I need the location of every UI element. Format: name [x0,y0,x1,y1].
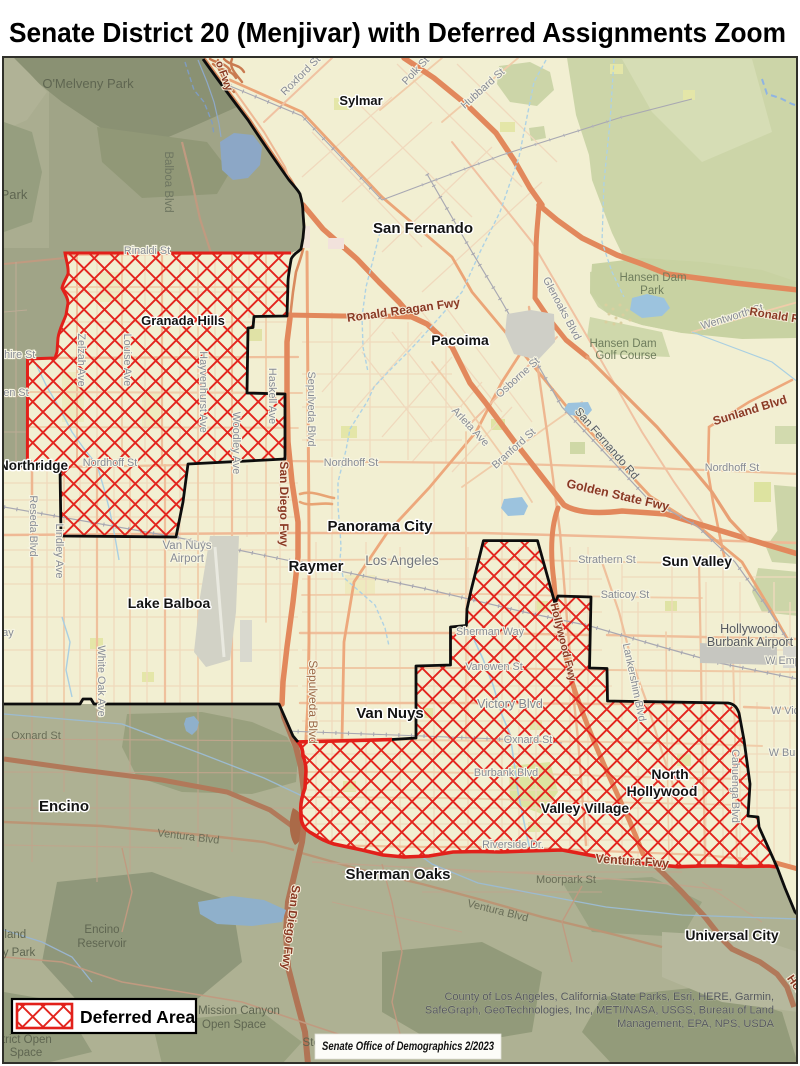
svg-text:Nordhoff St: Nordhoff St [705,462,759,474]
svg-text:Pacoima: Pacoima [431,332,489,348]
svg-text:San Diego Fwy: San Diego Fwy [277,461,291,547]
svg-text:Park: Park [640,285,664,297]
svg-text:Van Nuys: Van Nuys [162,540,211,552]
svg-text:Hayvenhurst Ave: Hayvenhurst Ave [197,351,209,432]
svg-text:Mission Canyon: Mission Canyon [198,1005,280,1017]
svg-text:Sepulveda Blvd: Sepulveda Blvd [306,660,320,743]
svg-text:Lake Balboa: Lake Balboa [128,595,211,611]
svg-text:strict Open: strict Open [4,1034,52,1046]
svg-text:Nordhoff St: Nordhoff St [324,457,378,469]
svg-text:Sepulveda Blvd: Sepulveda Blvd [305,371,317,446]
svg-text:Panorama City: Panorama City [327,518,433,535]
svg-text:Victory Blvd: Victory Blvd [477,697,543,711]
svg-text:Lindley Ave: Lindley Ave [53,523,65,578]
svg-text:Senate Office of Demographics: Senate Office of Demographics 2/2023 [322,1039,494,1053]
svg-text:Los Angeles: Los Angeles [365,553,439,568]
svg-text:W Emp: W Emp [765,655,796,667]
svg-text:Moorpark St: Moorpark St [536,874,596,886]
svg-text:Raymer: Raymer [288,558,343,575]
svg-text:Van Nuys: Van Nuys [356,705,424,722]
svg-text:Granada Hills: Granada Hills [141,313,225,328]
svg-text:Park: Park [4,187,28,202]
svg-text:Valley Village: Valley Village [541,800,630,816]
svg-text:O'Melveny Park: O'Melveny Park [42,76,134,91]
svg-text:Reservoir: Reservoir [77,938,126,950]
svg-text:White Oak Ave: White Oak Ave [95,645,107,716]
svg-text:Burbank Airport: Burbank Airport [707,635,794,649]
svg-text:Airport: Airport [170,553,205,565]
svg-text:Cahuenga Blvd: Cahuenga Blvd [729,749,741,823]
svg-text:Management, EPA, NPS, USDA: Management, EPA, NPS, USDA [617,1018,775,1030]
svg-text:Hansen Dam: Hansen Dam [589,338,656,350]
svg-text:SafeGraph, GeoTechnologies, In: SafeGraph, GeoTechnologies, Inc, METI/NA… [425,1005,774,1017]
svg-text:Oxnard St: Oxnard St [504,734,553,746]
svg-text:Rinaldi St: Rinaldi St [124,245,170,257]
svg-text:North: North [651,766,688,782]
svg-text:y Park: y Park [4,947,36,959]
svg-text:Reseda Blvd: Reseda Blvd [27,495,39,556]
svg-text:Hollywood: Hollywood [720,622,778,636]
svg-text:Sherman Oaks: Sherman Oaks [345,866,450,883]
svg-text:County of Los Angeles, Califor: County of Los Angeles, California State … [444,991,774,1003]
svg-text:Nordhoff St: Nordhoff St [83,457,137,469]
svg-text:Burbank Blvd: Burbank Blvd [474,767,538,779]
svg-text:Space: Space [10,1047,43,1059]
svg-text:Louise Ave: Louise Ave [121,334,133,387]
svg-text:Open Space: Open Space [202,1019,266,1031]
svg-text:Riverside Dr.: Riverside Dr. [482,839,544,851]
svg-text:Sylmar: Sylmar [339,93,382,108]
svg-text:lland: lland [4,929,26,941]
svg-text:San Fernando: San Fernando [373,220,473,237]
svg-text:Encino: Encino [84,924,119,936]
svg-text:Zelzah Ave: Zelzah Ave [75,333,87,386]
svg-text:Haskell Ave: Haskell Ave [266,368,278,424]
svg-text:W Vic: W Vic [771,705,796,717]
svg-text:Deferred Area: Deferred Area [80,1007,195,1027]
svg-text:Northridge: Northridge [4,458,68,473]
svg-text:ay: ay [4,627,14,639]
svg-text:Vanowen St: Vanowen St [465,661,522,673]
svg-text:Universal City: Universal City [685,927,779,943]
svg-text:Balboa Blvd: Balboa Blvd [162,151,174,212]
svg-text:Encino: Encino [39,798,89,815]
svg-text:Golf Course: Golf Course [595,350,656,362]
svg-text:shire St: shire St [4,349,35,361]
svg-text:Oxnard St: Oxnard St [11,730,61,742]
svg-text:Woodley Ave: Woodley Ave [230,412,242,475]
svg-text:en St: en St [4,387,29,399]
svg-text:Sun Valley: Sun Valley [662,553,732,569]
svg-text:W Bu: W Bu [769,747,795,759]
svg-text:Sherman Way: Sherman Way [456,626,525,638]
svg-text:Saticoy St: Saticoy St [601,589,650,601]
svg-text:Hansen Dam: Hansen Dam [619,272,686,284]
svg-text:Strathern St: Strathern St [578,554,636,566]
svg-text:Hollywood: Hollywood [627,783,698,799]
